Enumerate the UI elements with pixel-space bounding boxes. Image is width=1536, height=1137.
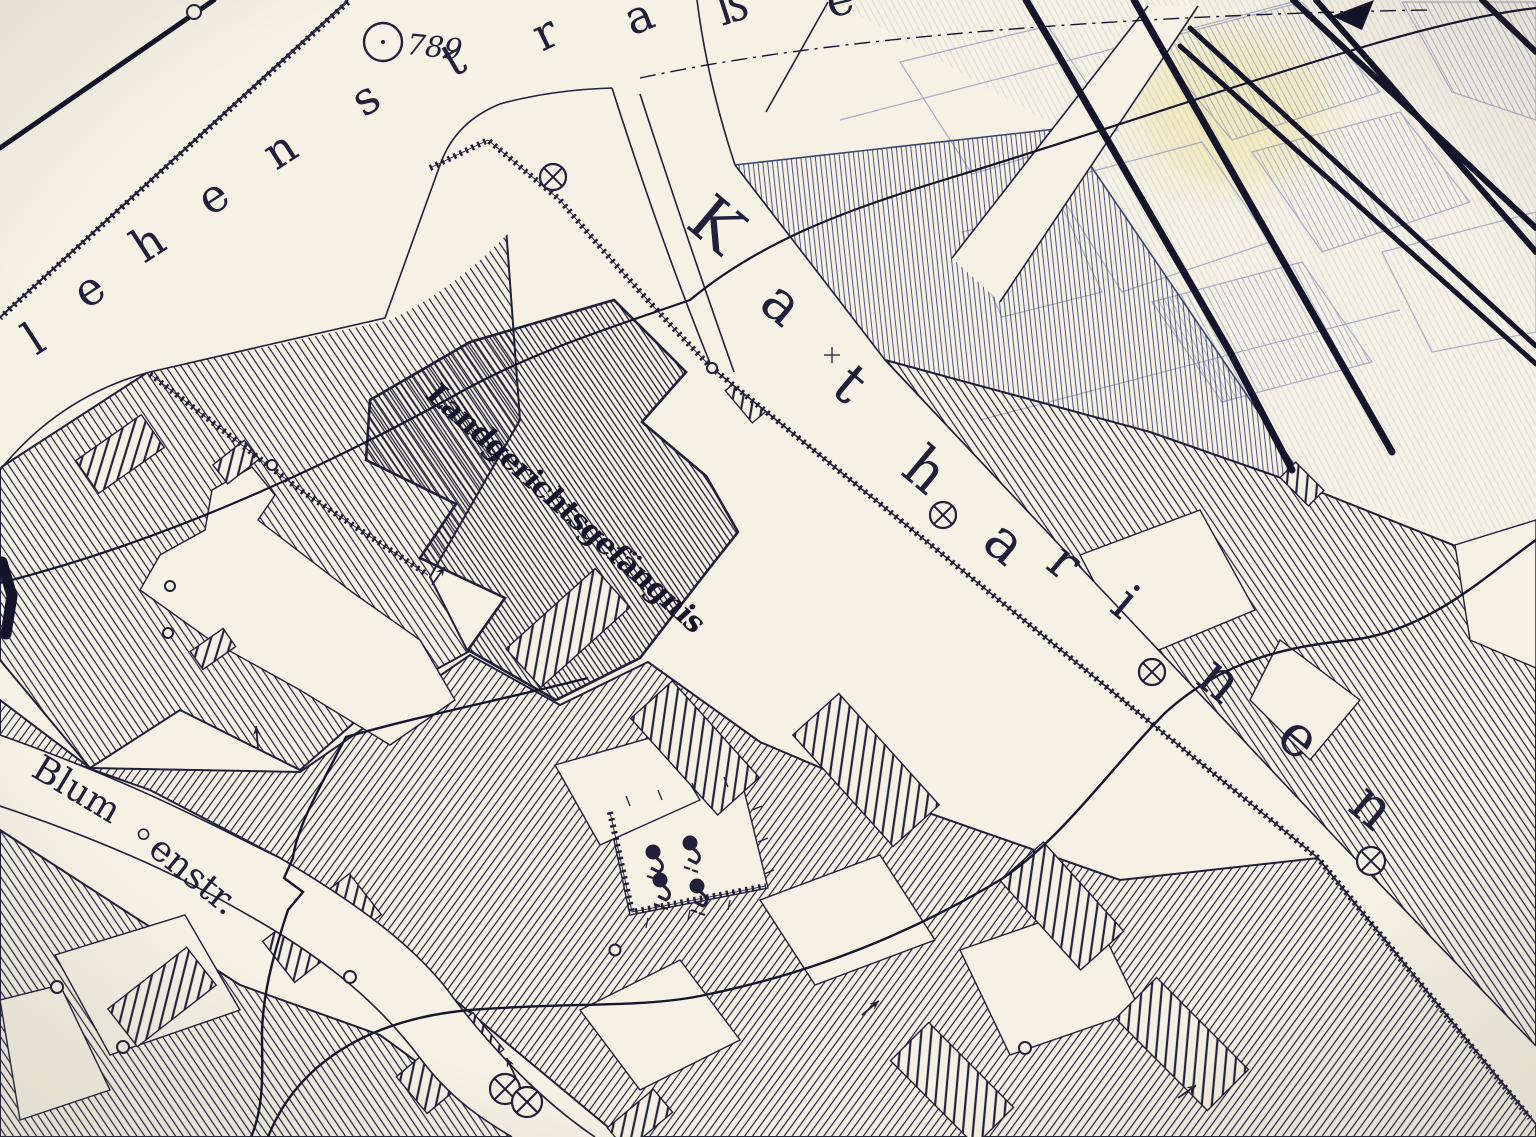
historical-city-map: lehenstraßeKatharinen 789 Blum enstr. La… (0, 0, 1536, 1137)
map-canvas[interactable]: lehenstraßeKatharinen 789 Blum enstr. La… (0, 0, 1536, 1137)
vignette-overlay (0, 0, 1536, 1137)
